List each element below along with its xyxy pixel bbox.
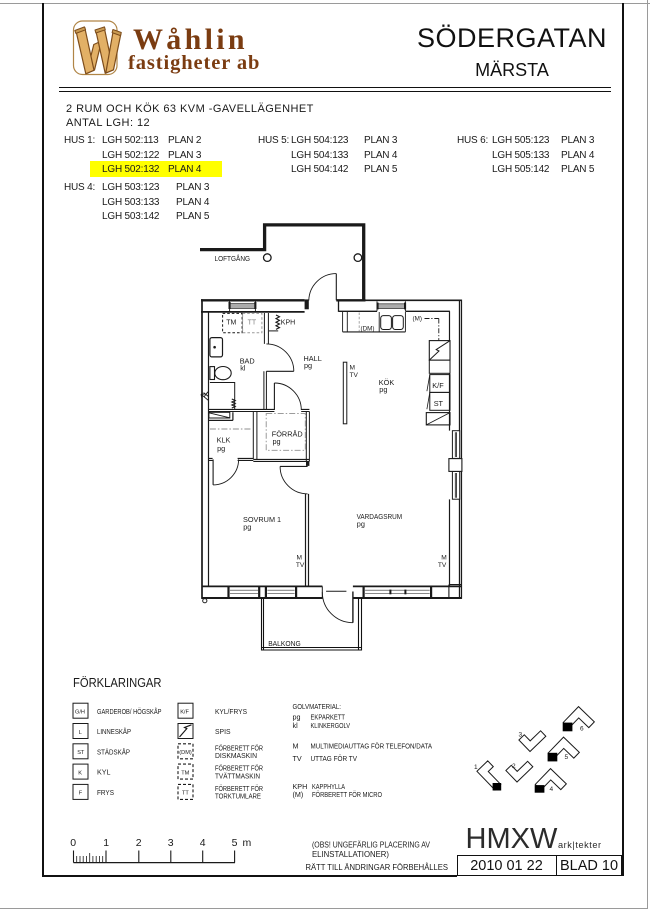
svg-text:kl: kl: [240, 364, 246, 373]
svg-text:FÖRKLARINGAR: FÖRKLARINGAR: [73, 675, 162, 690]
svg-text:TM: TM: [181, 770, 189, 776]
svg-text:2: 2: [136, 837, 142, 849]
svg-text:M: M: [350, 365, 356, 372]
svg-text:ELINSTALLATIONER): ELINSTALLATIONER): [312, 850, 389, 859]
svg-text:3: 3: [168, 837, 174, 849]
svg-text:TM: TM: [226, 319, 236, 326]
svg-text:KPH: KPH: [281, 320, 295, 327]
svg-text:pg: pg: [304, 361, 312, 370]
svg-text:TORKTUMLARE: TORKTUMLARE: [215, 792, 261, 801]
svg-text:L: L: [79, 730, 82, 736]
svg-text:1: 1: [103, 837, 109, 849]
svg-text:(DM): (DM): [179, 750, 192, 756]
svg-text:GOLVMATERIAL:: GOLVMATERIAL:: [293, 702, 342, 711]
svg-text:M: M: [293, 742, 299, 751]
svg-text:G/H: G/H: [75, 710, 85, 716]
svg-text:(M): (M): [413, 315, 422, 322]
svg-text:1: 1: [474, 764, 478, 771]
svg-text:pg: pg: [379, 385, 387, 394]
svg-text:MULTIMEDIAUTTAG FÖR TELEFON/DA: MULTIMEDIAUTTAG FÖR TELEFON/DATA: [311, 742, 433, 751]
svg-text:ST: ST: [434, 399, 444, 408]
svg-text:DISKMASKIN: DISKMASKIN: [215, 751, 257, 760]
svg-text:4: 4: [200, 837, 206, 849]
svg-text:GARDEROB/ HÖGSKÅP: GARDEROB/ HÖGSKÅP: [97, 707, 162, 716]
svg-text:K: K: [78, 770, 82, 776]
svg-text:UTTAG FÖR TV: UTTAG FÖR TV: [311, 754, 358, 763]
svg-text:TT: TT: [248, 319, 257, 326]
svg-text:(OBS! UNGEFÄRLIG PLACERING AV: (OBS! UNGEFÄRLIG PLACERING AV: [312, 840, 431, 849]
svg-text:TT: TT: [182, 791, 189, 797]
svg-text:KLINKERGOLV: KLINKERGOLV: [311, 721, 351, 730]
svg-text:TVÄTTMASKIN: TVÄTTMASKIN: [215, 771, 260, 780]
svg-text:LINNESKÅP: LINNESKÅP: [97, 727, 131, 736]
svg-text:TV: TV: [296, 562, 305, 569]
svg-text:m: m: [243, 837, 252, 849]
svg-text:3: 3: [519, 732, 523, 739]
svg-text:LOFTGÅNG: LOFTGÅNG: [215, 254, 251, 263]
svg-text:pg: pg: [273, 437, 281, 446]
svg-text:pg: pg: [243, 523, 251, 532]
svg-text:kl: kl: [293, 721, 299, 730]
svg-text:5: 5: [565, 754, 569, 761]
svg-text:ST: ST: [77, 750, 85, 756]
svg-text:5: 5: [232, 837, 238, 849]
svg-text:K/F: K/F: [432, 381, 444, 390]
svg-text:FRYS: FRYS: [97, 788, 114, 797]
svg-text:(DM): (DM): [361, 325, 375, 332]
svg-text:6: 6: [580, 726, 584, 733]
svg-text:0: 0: [70, 837, 76, 849]
svg-text:FÖRBERETT FÖR MICRO: FÖRBERETT FÖR MICRO: [312, 790, 382, 799]
svg-text:TV: TV: [438, 562, 447, 569]
svg-text:RÄTT TILL ÄNDRINGAR FÖRBEHÅLLE: RÄTT TILL ÄNDRINGAR FÖRBEHÅLLES: [306, 862, 449, 872]
svg-text:pg: pg: [357, 519, 365, 528]
svg-text:F: F: [79, 791, 83, 797]
svg-text:M: M: [297, 555, 303, 562]
svg-text:KYL/FRYS: KYL/FRYS: [215, 707, 247, 716]
svg-text:(M): (M): [293, 790, 304, 799]
svg-text:M: M: [441, 555, 447, 562]
svg-text:KYL: KYL: [97, 768, 111, 777]
svg-text:pg: pg: [217, 444, 225, 453]
svg-text:TV: TV: [350, 372, 359, 379]
svg-text:STÄDSKÅP: STÄDSKÅP: [97, 747, 130, 756]
svg-text:2: 2: [512, 763, 516, 770]
svg-text:BALKONG: BALKONG: [268, 639, 301, 648]
svg-text:SPIS: SPIS: [215, 727, 231, 736]
svg-text:K/F: K/F: [180, 710, 189, 716]
svg-text:TV: TV: [293, 754, 302, 763]
svg-text:4: 4: [550, 786, 554, 793]
